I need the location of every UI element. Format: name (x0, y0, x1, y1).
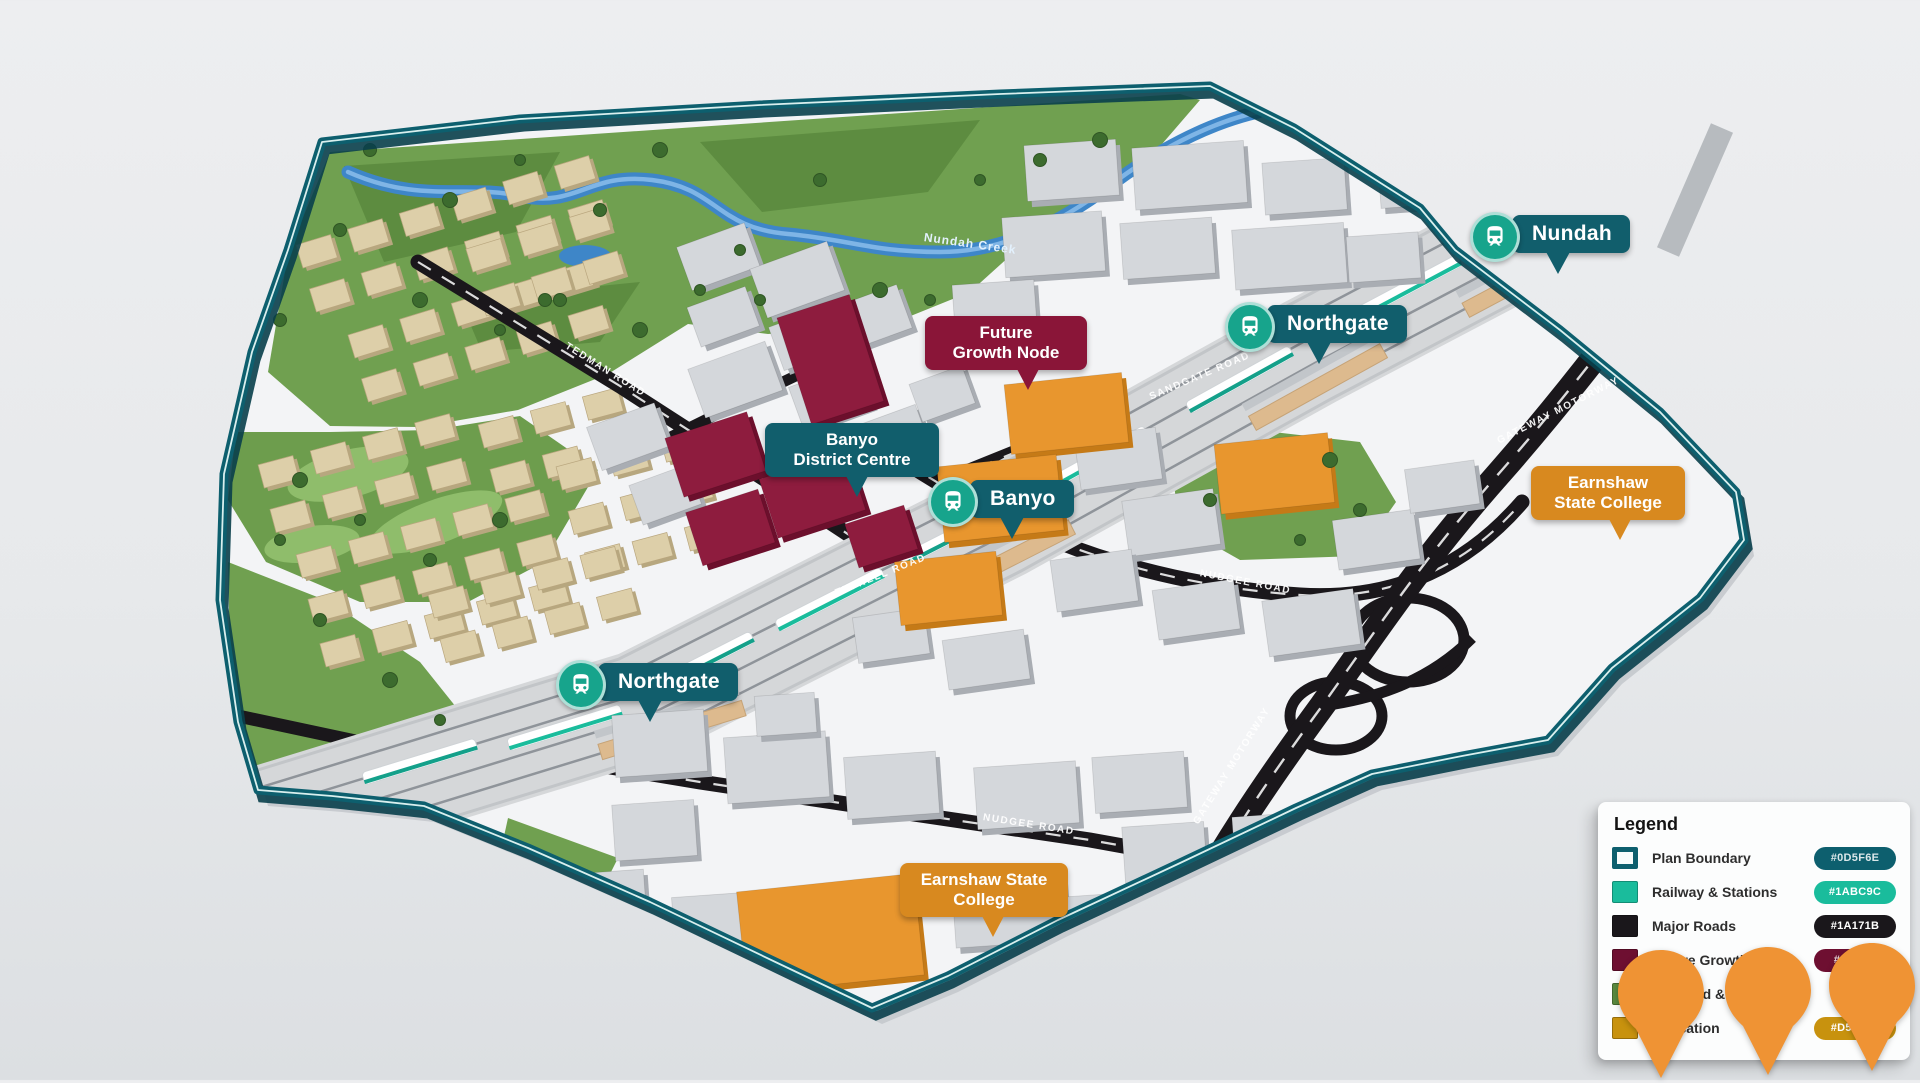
road-label: GATEWAY MOTORWAY (1496, 375, 1622, 446)
area-label-line: District Centre (773, 450, 931, 470)
area-label: Earnshaw StateCollege (900, 863, 1068, 917)
station-name-pill: Banyo (970, 480, 1074, 518)
label-pointer (637, 698, 663, 722)
area-label-line: Growth Node (933, 343, 1079, 363)
road-label: SANDGATE ROAD (1148, 350, 1252, 402)
label-pointer (999, 515, 1025, 539)
station-label: Northgate (556, 660, 738, 710)
road-label: TUFNELL ROAD (834, 552, 928, 598)
legend-title: Legend (1614, 814, 1910, 835)
label-pointer (845, 474, 869, 497)
area-label-line: Earnshaw State (908, 870, 1060, 890)
map-pin-icon (1725, 947, 1811, 1080)
map-infographic: NundahNorthgateBanyoNorthgateFutureGrowt… (0, 0, 1920, 1080)
legend-row: Plan Boundary#0D5F6E (1598, 841, 1910, 875)
legend-swatch (1612, 847, 1638, 869)
train-station-icon (928, 477, 978, 527)
legend-label: Plan Boundary (1652, 850, 1814, 866)
legend-row: Railway & Stations#1ABC9C (1598, 875, 1910, 909)
area-label-line: State College (1539, 493, 1677, 513)
creek-label: Nundah Creek (923, 230, 1017, 257)
area-label: FutureGrowth Node (925, 316, 1087, 370)
station-label: Banyo (928, 477, 1074, 527)
area-label: BanyoDistrict Centre (765, 423, 939, 477)
station-name-pill: Nundah (1512, 215, 1630, 253)
area-label: EarnshawState College (1531, 466, 1685, 520)
legend-swatch (1612, 881, 1638, 903)
label-pointer (1608, 517, 1632, 540)
label-pointer (1306, 340, 1332, 364)
legend-row: Major Roads#1A171B (1598, 909, 1910, 943)
legend-hex-badge: #0D5F6E (1814, 847, 1896, 870)
road-label: NUDGEE ROAD (1199, 568, 1292, 596)
map-pin-icon (1829, 943, 1915, 1076)
area-label-line: Earnshaw (1539, 473, 1677, 493)
legend-hex-badge: #1ABC9C (1814, 881, 1896, 904)
road-label: GATEWAY MOTORWAY (1191, 705, 1272, 826)
legend-label: Major Roads (1652, 918, 1814, 934)
legend-label: Railway & Stations (1652, 884, 1814, 900)
road-label: NUDGEE ROAD (982, 812, 1075, 837)
station-name-pill: Northgate (1267, 305, 1407, 343)
area-label-line: Banyo (773, 430, 931, 450)
label-pointer (1016, 367, 1040, 390)
train-station-icon (556, 660, 606, 710)
legend-swatch (1612, 915, 1638, 937)
map-pin-icon (1618, 950, 1704, 1083)
train-station-icon (1225, 302, 1275, 352)
area-label-line: Future (933, 323, 1079, 343)
legend-hex-badge: #1A171B (1814, 915, 1896, 938)
label-pointer (981, 914, 1005, 937)
road-label: TEDMAN ROAD (563, 341, 647, 399)
station-name-pill: Northgate (598, 663, 738, 701)
area-label-line: College (908, 890, 1060, 910)
train-station-icon (1470, 212, 1520, 262)
station-label: Northgate (1225, 302, 1407, 352)
station-label: Nundah (1470, 212, 1630, 262)
label-pointer (1545, 250, 1571, 274)
